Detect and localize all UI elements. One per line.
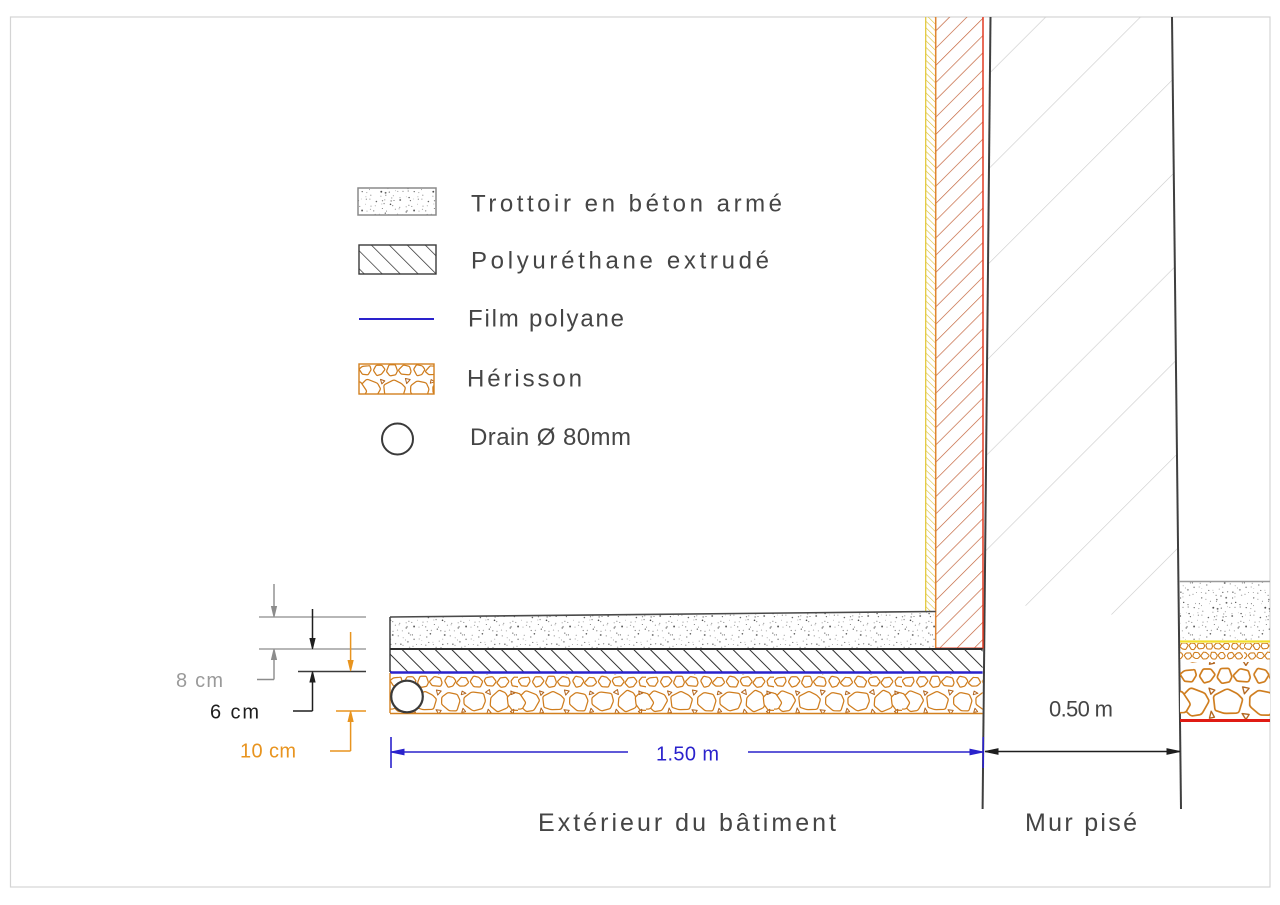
svg-text:Hérisson: Hérisson xyxy=(467,366,582,393)
svg-text:0.50 m: 0.50 m xyxy=(1049,697,1113,722)
svg-text:Film polyane: Film polyane xyxy=(468,306,624,333)
svg-text:1.50 m: 1.50 m xyxy=(656,744,719,766)
svg-text:Drain Ø 80mm: Drain Ø 80mm xyxy=(470,424,631,451)
svg-text:8 cm: 8 cm xyxy=(176,670,223,692)
svg-text:6 cm: 6 cm xyxy=(210,702,259,724)
svg-text:Mur pisé: Mur pisé xyxy=(1025,809,1137,837)
svg-text:10 cm: 10 cm xyxy=(240,741,296,763)
svg-text:Extérieur du bâtiment: Extérieur du bâtiment xyxy=(538,809,836,837)
